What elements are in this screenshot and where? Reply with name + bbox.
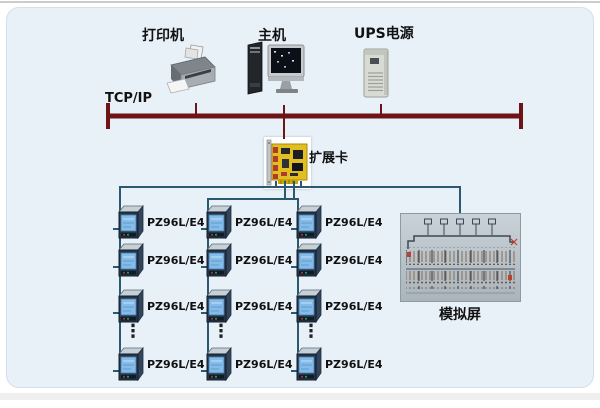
meter-node: PZ96L/E4 (295, 289, 383, 323)
ellipsis-icon: ⋮ (124, 319, 140, 345)
expansion-card-label: 扩展卡 (309, 147, 348, 166)
meter-label: PZ96L/E4 (235, 254, 293, 267)
meter-label: PZ96L/E4 (325, 358, 383, 371)
meter-label: PZ96L/E4 (147, 358, 205, 371)
meter-icon (295, 243, 322, 277)
mimic-panel (400, 213, 521, 302)
meter-node: PZ96L/E4 (117, 289, 205, 323)
meter-label: PZ96L/E4 (147, 300, 205, 313)
expansion-card (264, 137, 311, 189)
meter-label: PZ96L/E4 (325, 216, 383, 229)
expansion-card-icon (264, 137, 311, 189)
meter-node: PZ96L/E4 (295, 243, 383, 277)
meter-node: PZ96L/E4 (295, 205, 383, 239)
meter-label: PZ96L/E4 (147, 216, 205, 229)
mimic-panel-image (400, 213, 521, 302)
meter-icon (295, 205, 322, 239)
meter-node: PZ96L/E4 (205, 243, 293, 277)
ellipsis-icon: ⋮ (302, 319, 318, 345)
meter-label: PZ96L/E4 (325, 300, 383, 313)
host-icon (244, 39, 308, 101)
meter-label: PZ96L/E4 (147, 254, 205, 267)
meter-icon (295, 289, 322, 323)
meter-node: PZ96L/E4 (205, 289, 293, 323)
meter-node: PZ96L/E4 (205, 347, 293, 381)
ups-label: UPS电源 (354, 23, 414, 43)
meter-node: PZ96L/E4 (117, 243, 205, 277)
page-top-divider (0, 1, 600, 3)
meter-node: PZ96L/E4 (117, 205, 205, 239)
meter-icon (205, 243, 232, 277)
meter-label: PZ96L/E4 (235, 216, 293, 229)
meter-label: PZ96L/E4 (235, 300, 293, 313)
diagram-canvas: 打印机 主机 UPS电源 TCP/IP 扩展卡 PZ96L/E4 PZ96L/E… (6, 7, 594, 388)
meter-icon (295, 347, 322, 381)
ellipsis-icon: ⋮ (212, 319, 228, 345)
meter-node: PZ96L/E4 (295, 347, 383, 381)
meter-icon (117, 289, 144, 323)
meter-icon (117, 205, 144, 239)
meter-icon (205, 289, 232, 323)
meter-icon (117, 243, 144, 277)
meter-icon (117, 347, 144, 381)
printer-icon (165, 43, 217, 99)
meter-icon (205, 347, 232, 381)
page-bottom-strip (0, 393, 600, 400)
meter-node: PZ96L/E4 (205, 205, 293, 239)
meter-label: PZ96L/E4 (325, 254, 383, 267)
meter-icon (205, 205, 232, 239)
mimic-panel-label: 模拟屏 (439, 304, 481, 324)
printer-label: 打印机 (142, 25, 184, 45)
ups-icon (361, 47, 391, 99)
tcpip-bus-label: TCP/IP (105, 91, 152, 106)
meter-label: PZ96L/E4 (235, 358, 293, 371)
meter-node: PZ96L/E4 (117, 347, 205, 381)
